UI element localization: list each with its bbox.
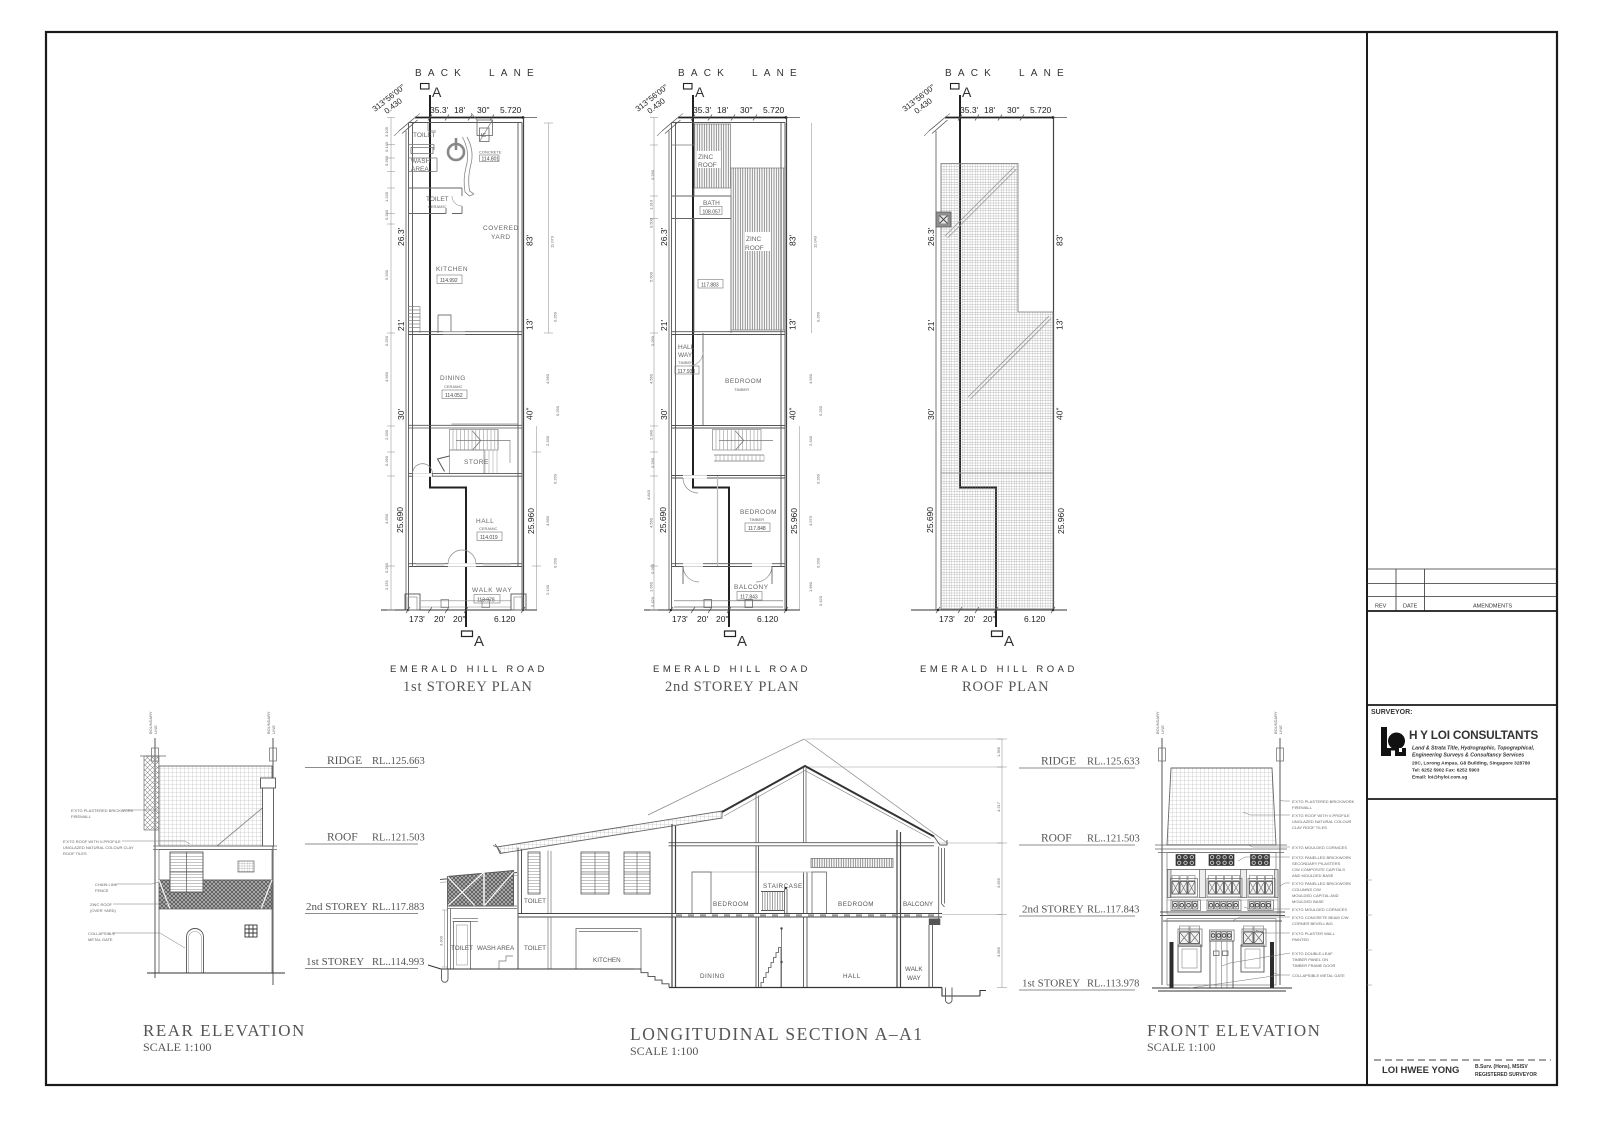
svg-text:DINING: DINING	[700, 973, 725, 980]
svg-text:4.560: 4.560	[384, 371, 389, 382]
svg-text:CERAMIC: CERAMIC	[444, 384, 463, 389]
svg-text:ROOF: ROOF	[1041, 833, 1072, 845]
svg-text:AMENDMENTS: AMENDMENTS	[1473, 604, 1512, 610]
svg-text:1st STOREY: 1st STOREY	[1022, 978, 1080, 990]
svg-text:CERAMIC: CERAMIC	[428, 204, 447, 209]
svg-text:LONGITUDINAL SECTION A–A1: LONGITUDINAL SECTION A–A1	[630, 1024, 924, 1044]
svg-text:1st STOREY: 1st STOREY	[306, 956, 364, 968]
svg-text:METAL GATE: METAL GATE	[88, 937, 113, 942]
svg-text:WALK WAY: WALK WAY	[472, 587, 512, 594]
svg-text:4.560: 4.560	[545, 515, 550, 526]
svg-text:Engineering Surveys & Consulta: Engineering Surveys & Consultancy Servic…	[1412, 753, 1524, 759]
svg-text:IC: IC	[481, 133, 486, 139]
svg-text:0.250: 0.250	[818, 405, 823, 416]
svg-text:Tel: 6252 5902 Fax: 6252 59: Tel: 6252 5902 Fax: 6252 5903	[1412, 768, 1480, 774]
svg-text:2.330: 2.330	[545, 435, 550, 446]
svg-text:E'XTG ROOF WITH V-PROFILE: E'XTG ROOF WITH V-PROFILE	[63, 839, 121, 844]
svg-text:LINE: LINE	[1278, 725, 1283, 734]
svg-text:BALCONY: BALCONY	[734, 584, 769, 591]
svg-text:0.260: 0.260	[650, 335, 655, 346]
svg-text:ROOF: ROOF	[745, 245, 764, 252]
svg-text:E'XTG PLASTERED BRICKWORK: E'XTG PLASTERED BRICKWORK	[71, 808, 134, 813]
svg-text:ROOF: ROOF	[327, 832, 358, 844]
svg-text:KITCHEN: KITCHEN	[436, 266, 468, 273]
svg-text:2nd STOREY PLAN: 2nd STOREY PLAN	[665, 679, 799, 695]
svg-text:FRONT ELEVATION: FRONT ELEVATION	[1147, 1021, 1321, 1040]
svg-text:4.560: 4.560	[545, 373, 550, 384]
svg-text:TIMBER PANEL ON: TIMBER PANEL ON	[1292, 957, 1328, 962]
svg-text:FIREWALL: FIREWALL	[1292, 805, 1313, 810]
svg-text:TOILET: TOILET	[426, 196, 449, 203]
svg-text:HALL: HALL	[476, 518, 494, 525]
svg-text:CORNER BEVELLING: CORNER BEVELLING	[1292, 921, 1333, 926]
svg-text:1.240: 1.240	[384, 191, 389, 202]
svg-text:0.140: 0.140	[384, 141, 389, 152]
svg-text:2.330: 2.330	[384, 429, 389, 440]
svg-text:2.340: 2.340	[808, 435, 813, 446]
svg-text:REV: REV	[1375, 604, 1387, 610]
svg-text:REGISTERED SURVEYOR: REGISTERED SURVEYOR	[1475, 1072, 1537, 1078]
svg-text:RL..121.503: RL..121.503	[1087, 834, 1140, 845]
svg-text:LINE: LINE	[1160, 725, 1165, 734]
svg-text:TIMBER FRAME DOOR: TIMBER FRAME DOOR	[1292, 963, 1335, 968]
svg-text:0.260: 0.260	[816, 473, 821, 484]
svg-text:ROOF TILES: ROOF TILES	[63, 851, 87, 856]
svg-text:MOULDED BASE: MOULDED BASE	[1292, 899, 1324, 904]
svg-text:LINE: LINE	[271, 725, 276, 734]
svg-text:Land & Strata Title, Hydrograp: Land & Strata Title, Hydrographic, Topog…	[1412, 746, 1534, 752]
svg-text:BEDROOM: BEDROOM	[725, 378, 762, 385]
svg-text:BEDROOM: BEDROOM	[713, 901, 749, 908]
svg-text:2.151: 2.151	[384, 579, 389, 590]
svg-text:RL..121.503: RL..121.503	[372, 833, 425, 844]
svg-text:LINE: LINE	[153, 725, 158, 734]
svg-text:4.560: 4.560	[808, 373, 813, 384]
svg-text:FIREWALL: FIREWALL	[71, 814, 92, 819]
svg-text:5.600: 5.600	[649, 271, 654, 282]
svg-text:117.883: 117.883	[701, 283, 719, 289]
svg-text:STAIRCASE: STAIRCASE	[763, 883, 803, 890]
svg-text:CERAMIC: CERAMIC	[479, 526, 498, 531]
svg-text:2nd STOREY: 2nd STOREY	[306, 901, 368, 913]
svg-text:SCALE 1:100: SCALE 1:100	[630, 1044, 698, 1058]
svg-text:Email: loi@hyloi.com.sg: Email: loi@hyloi.com.sg	[1412, 775, 1467, 781]
svg-text:117.848: 117.848	[748, 526, 766, 532]
svg-text:CLAY ROOF TILES: CLAY ROOF TILES	[1292, 825, 1327, 830]
svg-text:4.590: 4.590	[384, 513, 389, 524]
svg-text:0.250: 0.250	[384, 335, 389, 346]
svg-text:4.560: 4.560	[649, 373, 654, 384]
svg-text:5.930: 5.930	[384, 269, 389, 280]
svg-text:WASH: WASH	[411, 158, 431, 165]
svg-text:TIMBER: TIMBER	[678, 360, 693, 365]
svg-text:RL..117.883: RL..117.883	[372, 902, 424, 913]
svg-text:(OVER YARD): (OVER YARD)	[90, 908, 117, 913]
svg-text:WAY: WAY	[907, 975, 921, 982]
svg-text:E'XTG PLASTER WALL: E'XTG PLASTER WALL	[1292, 931, 1336, 936]
svg-text:WASH AREA: WASH AREA	[477, 945, 515, 952]
svg-text:COLLAPSIBLE METAL GATE: COLLAPSIBLE METAL GATE	[1292, 973, 1345, 978]
svg-text:0.260: 0.260	[650, 169, 655, 180]
svg-text:1.366: 1.366	[996, 746, 1001, 757]
svg-text:4.843: 4.843	[646, 489, 651, 500]
svg-text:AND MOULDED BASE: AND MOULDED BASE	[1292, 873, 1334, 878]
svg-text:TOILET: TOILET	[524, 898, 546, 905]
svg-text:E'XTG CONCRETE BEAM C/W: E'XTG CONCRETE BEAM C/W	[1292, 915, 1349, 920]
svg-text:108.057: 108.057	[703, 210, 721, 216]
svg-text:RL..125.633: RL..125.633	[1087, 757, 1140, 768]
svg-text:MOULDED CAPITAL AND: MOULDED CAPITAL AND	[1292, 893, 1339, 898]
svg-text:RL..117.843: RL..117.843	[1087, 905, 1139, 916]
svg-text:1st STOREY PLAN: 1st STOREY PLAN	[403, 679, 533, 695]
svg-text:E'XTG ROOF WITH V-PROFILE: E'XTG ROOF WITH V-PROFILE	[1292, 813, 1350, 818]
svg-text:HALL: HALL	[843, 973, 861, 980]
svg-text:AREA: AREA	[411, 166, 429, 173]
svg-text:ZINC: ZINC	[698, 154, 713, 161]
svg-text:BATH: BATH	[703, 200, 720, 207]
svg-text:114.992: 114.992	[440, 278, 458, 284]
svg-text:114.019: 114.019	[480, 535, 498, 541]
svg-text:3.300: 3.300	[439, 935, 444, 946]
svg-text:RL..114.993: RL..114.993	[372, 957, 424, 968]
svg-text:WAY: WAY	[678, 352, 693, 359]
svg-text:E'XTG PANELLED BRICKWORK: E'XTG PANELLED BRICKWORK	[1292, 855, 1351, 860]
svg-text:ROOF: ROOF	[698, 162, 717, 169]
svg-text:SCALE 1:100: SCALE 1:100	[143, 1040, 211, 1054]
svg-text:CONCRETE: CONCRETE	[479, 150, 502, 155]
svg-text:0.260: 0.260	[816, 557, 821, 568]
svg-text:0.260: 0.260	[384, 455, 389, 466]
svg-text:20C, Lorong Ampas, G8 Building: 20C, Lorong Ampas, G8 Building, Singapor…	[1412, 761, 1531, 767]
svg-text:1.660: 1.660	[808, 581, 813, 592]
svg-text:HALL: HALL	[678, 344, 695, 351]
svg-text:B.Surv. (Hons), MSISV: B.Surv. (Hons), MSISV	[1475, 1064, 1528, 1070]
svg-text:ZINC: ZINC	[746, 236, 761, 243]
svg-text:DINING: DINING	[440, 375, 466, 382]
svg-text:ROOF PLAN: ROOF PLAN	[962, 679, 1049, 695]
svg-text:PAINTED: PAINTED	[1292, 937, 1309, 942]
svg-text:WALK: WALK	[905, 966, 923, 973]
svg-text:TOILET: TOILET	[524, 945, 546, 952]
svg-text:LOI HWEE YONG: LOI HWEE YONG	[1382, 1065, 1459, 1076]
svg-text:0.250: 0.250	[555, 405, 560, 416]
svg-text:COVERED: COVERED	[483, 225, 519, 232]
svg-text:4.217: 4.217	[996, 801, 1001, 812]
svg-text:2.130: 2.130	[545, 584, 550, 595]
svg-text:TIMBER: TIMBER	[749, 517, 764, 522]
svg-text:SECONDARY PILASTERS: SECONDARY PILASTERS	[1292, 861, 1341, 866]
svg-text:TOILET: TOILET	[413, 132, 436, 139]
svg-text:FENCE: FENCE	[95, 888, 109, 893]
svg-text:E'XTG PLASTERED BRICKWORK: E'XTG PLASTERED BRICKWORK	[1292, 799, 1355, 804]
svg-text:BEDROOM: BEDROOM	[740, 509, 777, 516]
svg-text:0.280: 0.280	[384, 209, 389, 220]
svg-text:2.340: 2.340	[649, 429, 654, 440]
svg-text:0.260: 0.260	[384, 155, 389, 166]
svg-text:RL..113.978: RL..113.978	[1087, 979, 1139, 990]
svg-text:0.420: 0.420	[650, 596, 655, 607]
svg-text:3.865: 3.865	[996, 946, 1001, 957]
svg-text:RIDGE: RIDGE	[1041, 756, 1076, 768]
svg-text:H Y LOI CONSULTANTS: H Y LOI CONSULTANTS	[1409, 728, 1538, 742]
svg-text:DATE: DATE	[1403, 604, 1418, 610]
svg-text:E'XTG MOULDED CORNICES: E'XTG MOULDED CORNICES	[1292, 845, 1347, 850]
svg-text:TIMBER: TIMBER	[734, 387, 749, 392]
svg-text:0.260: 0.260	[553, 311, 558, 322]
svg-text:114.801: 114.801	[482, 157, 500, 163]
svg-text:4.560: 4.560	[649, 517, 654, 528]
svg-text:0.260: 0.260	[650, 457, 655, 468]
svg-text:0.500: 0.500	[649, 217, 654, 228]
svg-text:BEDROOM: BEDROOM	[838, 901, 874, 908]
svg-text:CHAIN LINK: CHAIN LINK	[95, 882, 118, 887]
svg-text:114.052: 114.052	[445, 393, 463, 399]
svg-text:TOILET: TOILET	[451, 945, 473, 952]
svg-text:1.310: 1.310	[649, 199, 654, 210]
svg-text:0.260: 0.260	[553, 473, 558, 484]
svg-text:E'XTG MOULDED CORNICES: E'XTG MOULDED CORNICES	[1292, 907, 1347, 912]
svg-text:3.109: 3.109	[384, 126, 389, 137]
svg-text:E'XTG PANELLED BRICKWORK: E'XTG PANELLED BRICKWORK	[1292, 881, 1351, 886]
svg-text:11.043: 11.043	[813, 235, 818, 248]
svg-text:REAR ELEVATION: REAR ELEVATION	[143, 1021, 306, 1040]
svg-text:STORE: STORE	[464, 459, 489, 466]
svg-text:C/W COMPOSITE CAPITALS: C/W COMPOSITE CAPITALS	[1292, 867, 1345, 872]
svg-text:ZINC ROOF: ZINC ROOF	[90, 902, 113, 907]
svg-text:RL..125.663: RL..125.663	[372, 756, 425, 767]
svg-text:COLLAPSIBLE: COLLAPSIBLE	[88, 931, 115, 936]
svg-text:3.655: 3.655	[996, 877, 1001, 888]
svg-text:0.260: 0.260	[650, 563, 655, 574]
svg-text:0.420: 0.420	[818, 595, 823, 606]
svg-text:0.260: 0.260	[816, 311, 821, 322]
svg-text:KITCHEN: KITCHEN	[593, 957, 621, 964]
svg-text:E'XTG DOUBLE-LEAF: E'XTG DOUBLE-LEAF	[1292, 951, 1333, 956]
svg-text:1.660: 1.660	[649, 581, 654, 592]
svg-text:SURVEYOR:: SURVEYOR:	[1371, 709, 1413, 716]
svg-text:RIDGE: RIDGE	[327, 755, 362, 767]
svg-text:11.073: 11.073	[550, 235, 555, 248]
svg-text:4.570: 4.570	[808, 515, 813, 526]
svg-text:COLUMNS C/W: COLUMNS C/W	[1292, 887, 1321, 892]
svg-text:SCALE 1:100: SCALE 1:100	[1147, 1040, 1215, 1054]
svg-text:0.260: 0.260	[384, 562, 389, 573]
svg-text:UNGLAZED NATURAL COLOUR CLAY: UNGLAZED NATURAL COLOUR CLAY	[63, 845, 134, 850]
svg-text:YARD: YARD	[491, 234, 511, 241]
svg-text:0.260: 0.260	[553, 557, 558, 568]
svg-text:2nd STOREY: 2nd STOREY	[1022, 904, 1084, 916]
svg-text:117.930: 117.930	[678, 369, 696, 375]
svg-text:UNGLAZED NATURAL COLOUR: UNGLAZED NATURAL COLOUR	[1292, 819, 1351, 824]
svg-text:BALCONY: BALCONY	[903, 901, 934, 908]
